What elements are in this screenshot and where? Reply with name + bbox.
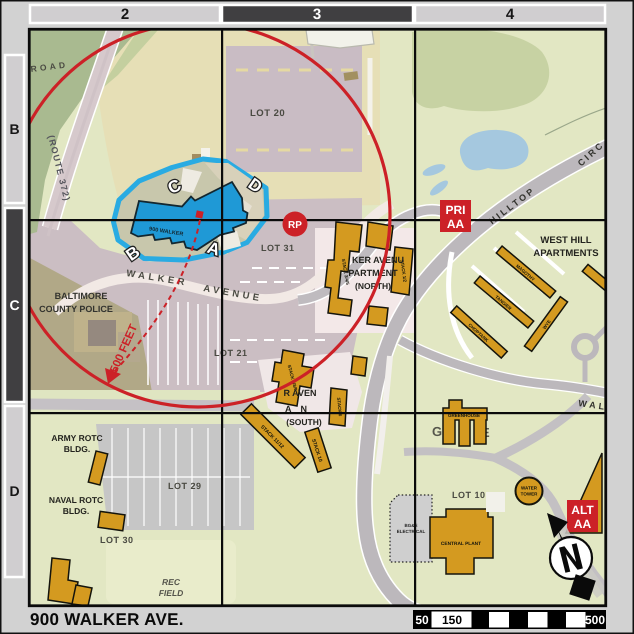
svg-text:APARTMENTS: APARTMENTS bbox=[533, 248, 598, 259]
svg-text:3: 3 bbox=[313, 6, 321, 23]
svg-text:B: B bbox=[9, 121, 19, 137]
svg-text:NAVAL ROTC: NAVAL ROTC bbox=[49, 495, 103, 505]
svg-text:LOT 31: LOT 31 bbox=[261, 243, 295, 253]
svg-text:AA: AA bbox=[574, 517, 592, 531]
svg-text:PRI: PRI bbox=[445, 203, 465, 217]
svg-text:R AVEN: R AVEN bbox=[283, 388, 316, 398]
svg-text:(NORTH): (NORTH) bbox=[355, 281, 391, 291]
svg-text:4: 4 bbox=[506, 6, 515, 23]
svg-text:500: 500 bbox=[585, 613, 605, 627]
svg-text:ALT: ALT bbox=[571, 503, 594, 517]
svg-text:ELECTRICAL: ELECTRICAL bbox=[397, 529, 426, 534]
svg-text:REC: REC bbox=[162, 577, 181, 587]
svg-text:RP: RP bbox=[288, 220, 302, 231]
svg-text:LOT 30: LOT 30 bbox=[100, 535, 134, 545]
svg-text:50: 50 bbox=[415, 613, 429, 627]
svg-text:CENTRAL PLANT: CENTRAL PLANT bbox=[441, 541, 481, 547]
svg-text:KER AVENU: KER AVENU bbox=[352, 255, 404, 265]
svg-text:BLDG.: BLDG. bbox=[63, 506, 89, 516]
svg-text:PARTMENT: PARTMENT bbox=[348, 268, 398, 278]
svg-text:WATER: WATER bbox=[521, 486, 538, 491]
svg-text:(SOUTH): (SOUTH) bbox=[286, 417, 322, 427]
svg-text:LOT 21: LOT 21 bbox=[214, 348, 248, 358]
svg-text:BALTIMORE: BALTIMORE bbox=[55, 291, 108, 301]
svg-text:BLDG.: BLDG. bbox=[64, 444, 90, 454]
svg-text:TOWER: TOWER bbox=[521, 492, 538, 497]
svg-text:C: C bbox=[9, 297, 19, 313]
svg-text:COUNTY POLICE: COUNTY POLICE bbox=[39, 304, 113, 314]
svg-text:G: G bbox=[432, 424, 442, 439]
svg-text:D: D bbox=[9, 483, 19, 499]
svg-text:900 WALKER AVE.: 900 WALKER AVE. bbox=[30, 610, 184, 629]
svg-text:LOT 20: LOT 20 bbox=[250, 108, 285, 119]
svg-text:150: 150 bbox=[442, 613, 462, 627]
svg-text:LOT 29: LOT 29 bbox=[168, 481, 202, 491]
svg-text:LOT 10: LOT 10 bbox=[452, 490, 486, 500]
svg-text:AA: AA bbox=[447, 217, 465, 231]
svg-text:2: 2 bbox=[121, 6, 129, 23]
svg-text:FIELD: FIELD bbox=[159, 588, 184, 598]
svg-text:ARMY ROTC: ARMY ROTC bbox=[51, 433, 102, 443]
svg-text:WEST HILL: WEST HILL bbox=[540, 235, 591, 246]
